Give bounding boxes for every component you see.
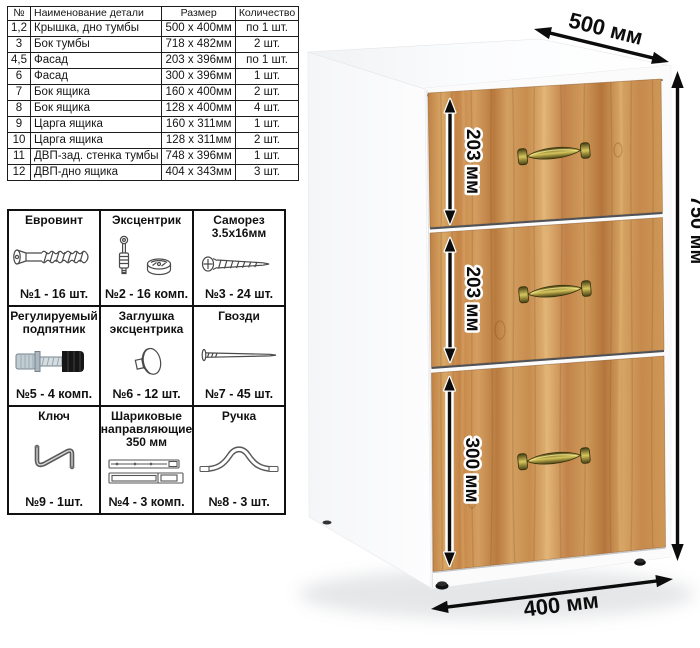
assembly-instructions-page: № Наименование детали Размер Количество … bbox=[0, 0, 700, 648]
cabinet-foot bbox=[323, 521, 332, 525]
dimension-label-drawer3: 300 мм bbox=[461, 437, 482, 502]
dimension-label-drawer1: 203 мм bbox=[462, 129, 483, 194]
cabinet-illustration: 500 мм 750 мм 400 мм 203 мм bbox=[0, 0, 700, 648]
dimension-label-depth: 500 мм bbox=[566, 7, 645, 49]
cabinet-side-panel bbox=[308, 52, 431, 588]
dim-arrow-height: 750 мм bbox=[671, 71, 700, 561]
dimension-label-drawer2: 203 мм bbox=[462, 266, 483, 331]
dimension-label-height: 750 мм bbox=[686, 196, 700, 265]
